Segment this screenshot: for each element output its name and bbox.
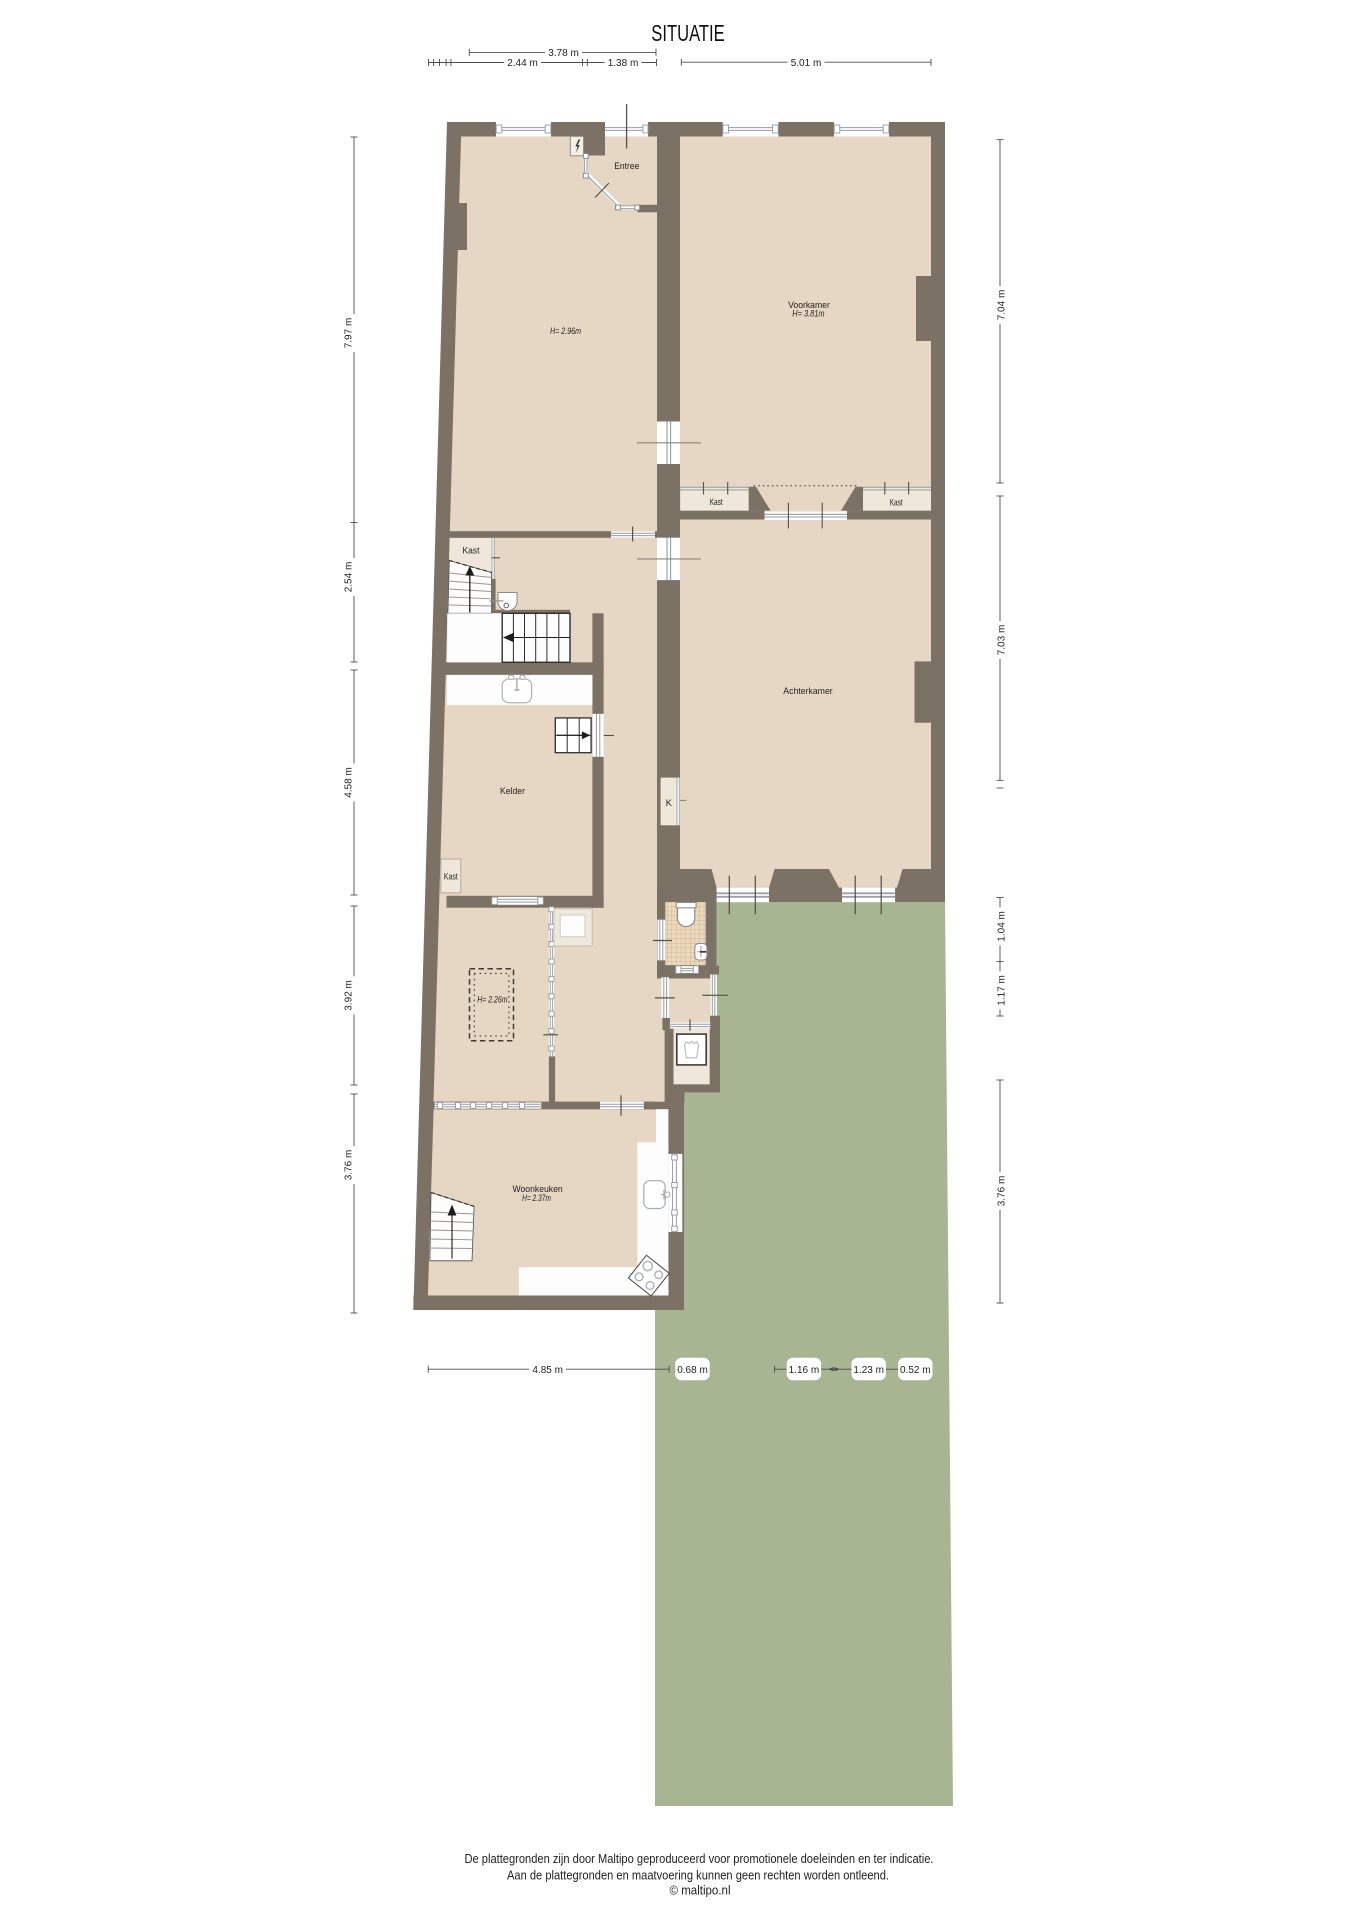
svg-text:Kast: Kast xyxy=(710,497,723,507)
svg-text:H= 2.26m: H= 2.26m xyxy=(477,994,507,1004)
svg-text:Kelder: Kelder xyxy=(500,786,525,796)
svg-text:3.76 m: 3.76 m xyxy=(344,1150,355,1181)
svg-text:3.76 m: 3.76 m xyxy=(997,1176,1008,1207)
svg-text:H= 2.37m: H= 2.37m xyxy=(522,1193,551,1203)
svg-text:7.03 m: 7.03 m xyxy=(997,625,1008,656)
svg-text:5.01 m: 5.01 m xyxy=(791,58,822,69)
svg-text:1.16 m: 1.16 m xyxy=(789,1365,820,1376)
svg-text:0.52 m: 0.52 m xyxy=(900,1365,931,1376)
svg-text:3.92 m: 3.92 m xyxy=(344,980,355,1011)
svg-text:4.85 m: 4.85 m xyxy=(532,1365,563,1376)
svg-text:1.17 m: 1.17 m xyxy=(997,975,1008,1006)
svg-text:2.54 m: 2.54 m xyxy=(344,562,355,593)
svg-text:7.04 m: 7.04 m xyxy=(997,290,1008,321)
svg-text:Entree: Entree xyxy=(614,161,639,171)
svg-text:1.38 m: 1.38 m xyxy=(608,58,639,69)
svg-text:3.78 m: 3.78 m xyxy=(548,48,579,59)
svg-text:0.68 m: 0.68 m xyxy=(677,1365,708,1376)
svg-text:1.04 m: 1.04 m xyxy=(997,911,1008,942)
svg-text:Kast: Kast xyxy=(463,546,480,556)
svg-text:SITUATIE: SITUATIE xyxy=(651,20,725,46)
svg-text:Achterkamer: Achterkamer xyxy=(783,686,832,696)
svg-text:Aan de plattegronden en maatvo: Aan de plattegronden en maatvoering kunn… xyxy=(507,1868,889,1883)
svg-text:Kast: Kast xyxy=(444,871,458,881)
svg-text:De plattegronden zijn door Mal: De plattegronden zijn door Maltipo gepro… xyxy=(465,1851,934,1866)
svg-text:2.44 m: 2.44 m xyxy=(507,58,538,69)
svg-text:7.97 m: 7.97 m xyxy=(344,318,355,349)
svg-text:© maltipo.nl: © maltipo.nl xyxy=(670,1883,731,1898)
svg-text:4.58 m: 4.58 m xyxy=(344,767,355,798)
svg-text:H= 3.81m: H= 3.81m xyxy=(792,309,824,319)
svg-text:K: K xyxy=(666,798,673,808)
svg-text:1.23 m: 1.23 m xyxy=(853,1365,884,1376)
svg-text:Kast: Kast xyxy=(890,498,903,508)
svg-text:H= 2.96m: H= 2.96m xyxy=(550,326,581,336)
